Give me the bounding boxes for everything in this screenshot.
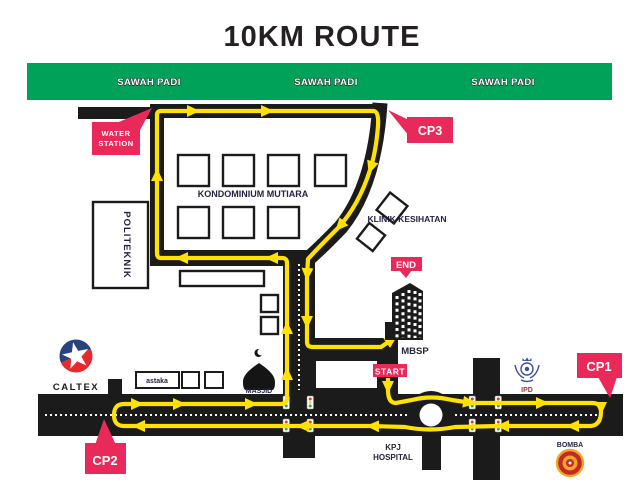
start-marker: START bbox=[373, 364, 407, 377]
svg-text:CP1: CP1 bbox=[586, 359, 611, 374]
fire-brigade-crest-icon bbox=[557, 450, 583, 476]
svg-text:WATER: WATER bbox=[101, 129, 130, 138]
svg-text:END: END bbox=[396, 260, 416, 271]
bomba-label: BOMBA bbox=[557, 442, 583, 449]
svg-text:CP3: CP3 bbox=[418, 124, 442, 138]
road-below-roundabout bbox=[422, 436, 441, 470]
page-title: 10KM ROUTE bbox=[224, 21, 421, 53]
astaka-block bbox=[182, 372, 199, 388]
mbsp-label: MBSP bbox=[401, 346, 429, 357]
block-gap bbox=[316, 361, 377, 388]
sawah-padi-label: SAWAH PADI bbox=[117, 77, 180, 88]
politeknik-label: POLITEKNIK bbox=[121, 211, 132, 279]
masjid-label: MASJID bbox=[246, 388, 272, 395]
svg-text:START: START bbox=[375, 367, 406, 377]
svg-text:CP2: CP2 bbox=[92, 453, 117, 468]
caltex-logo-icon bbox=[54, 334, 98, 378]
kondominium-label: KONDOMINIUM MUTIARA bbox=[198, 189, 309, 199]
cp1-marker: CP1 bbox=[577, 353, 622, 398]
politeknik-building bbox=[93, 202, 148, 288]
traffic-light-icon bbox=[307, 396, 314, 409]
svg-text:STATION: STATION bbox=[98, 139, 133, 148]
route-map-page: 10KM ROUTE SAWAH PADI SAWAH PADI SAWAH P… bbox=[0, 0, 639, 500]
klinik-building bbox=[357, 223, 385, 251]
cp3-marker: CP3 bbox=[388, 110, 453, 143]
astaka-block bbox=[205, 372, 223, 388]
sawah-padi-label: SAWAH PADI bbox=[294, 77, 357, 88]
kpj-hospital-label: HOSPITAL bbox=[373, 453, 413, 462]
kpj-hospital-label: KPJ bbox=[385, 443, 401, 452]
end-marker: END bbox=[391, 257, 422, 278]
police-crest-icon bbox=[515, 358, 539, 382]
mbsp-building-icon bbox=[385, 283, 423, 340]
road-cp2-stub bbox=[108, 379, 122, 395]
ipd-label: IPD bbox=[521, 387, 533, 394]
astaka-label: astaka bbox=[146, 378, 168, 385]
caltex-label: CALTEX bbox=[53, 382, 99, 393]
mosque-icon bbox=[243, 349, 275, 390]
route-map-svg: 10KM ROUTE SAWAH PADI SAWAH PADI SAWAH P… bbox=[0, 0, 639, 500]
sawah-padi-label: SAWAH PADI bbox=[471, 77, 534, 88]
klinik-label: KLINIK KESIHATAN bbox=[367, 214, 446, 224]
